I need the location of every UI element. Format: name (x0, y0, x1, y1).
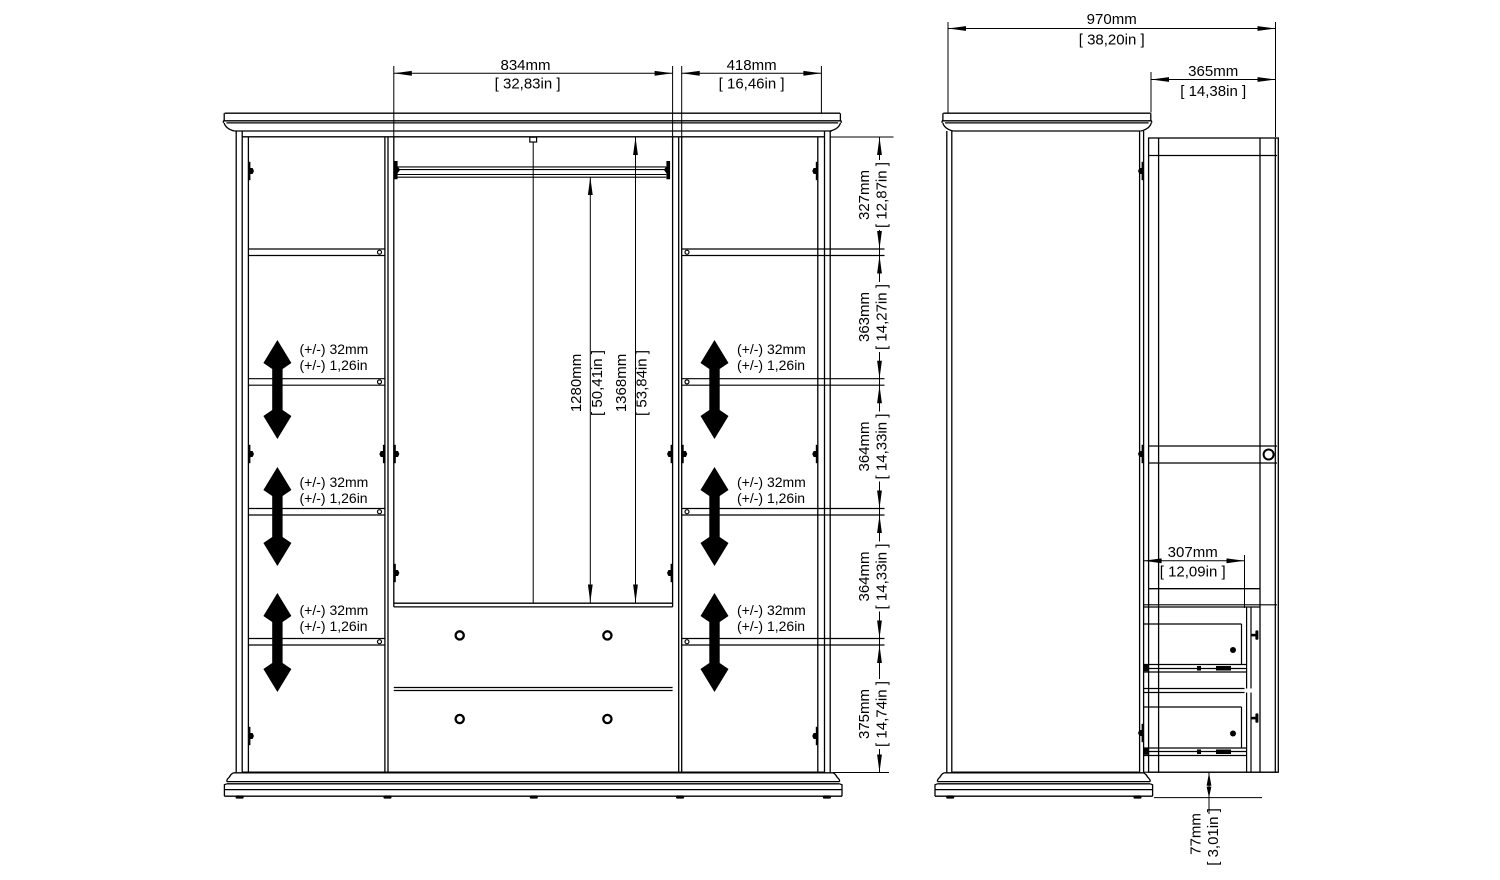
svg-text:[ 38,20in ]: [ 38,20in ] (1079, 32, 1145, 49)
svg-text:365mm: 365mm (1188, 63, 1238, 80)
svg-text:[ 12,87in ]: [ 12,87in ] (874, 162, 891, 228)
svg-text:1368mm: 1368mm (613, 354, 630, 412)
svg-text:[ 32,83in ]: [ 32,83in ] (495, 76, 561, 93)
svg-text:[ 3,01in ]: [ 3,01in ] (1205, 808, 1222, 866)
svg-text:[ 14,27in ]: [ 14,27in ] (874, 284, 891, 350)
svg-text:418mm: 418mm (727, 57, 777, 74)
svg-text:(+/-) 1,26in: (+/-) 1,26in (737, 490, 805, 506)
svg-text:375mm: 375mm (856, 689, 873, 739)
svg-text:363mm: 363mm (856, 292, 873, 342)
svg-text:(+/-) 1,26in: (+/-) 1,26in (300, 490, 368, 506)
svg-text:1280mm: 1280mm (568, 354, 585, 412)
svg-text:[ 14,33in ]: [ 14,33in ] (874, 544, 891, 610)
svg-text:327mm: 327mm (856, 170, 873, 220)
svg-text:970mm: 970mm (1087, 11, 1137, 28)
svg-text:307mm: 307mm (1168, 544, 1218, 561)
svg-text:(+/-) 32mm: (+/-) 32mm (300, 341, 369, 357)
svg-text:(+/-) 1,26in: (+/-) 1,26in (300, 357, 368, 373)
svg-text:(+/-) 32mm: (+/-) 32mm (300, 602, 369, 618)
svg-text:(+/-) 32mm: (+/-) 32mm (737, 341, 806, 357)
svg-text:[ 14,33in ]: [ 14,33in ] (874, 414, 891, 480)
svg-text:[ 14,74in ]: [ 14,74in ] (874, 681, 891, 747)
svg-text:(+/-) 1,26in: (+/-) 1,26in (737, 618, 805, 634)
svg-text:[ 50,41in ]: [ 50,41in ] (589, 350, 606, 416)
svg-text:(+/-) 1,26in: (+/-) 1,26in (737, 357, 805, 373)
svg-text:[ 12,09in ]: [ 12,09in ] (1160, 564, 1226, 581)
svg-text:[ 16,46in ]: [ 16,46in ] (719, 76, 785, 93)
svg-text:834mm: 834mm (500, 57, 550, 74)
svg-text:(+/-) 32mm: (+/-) 32mm (300, 474, 369, 490)
svg-text:(+/-) 32mm: (+/-) 32mm (737, 474, 806, 490)
svg-text:[ 53,84in ]: [ 53,84in ] (634, 350, 651, 416)
svg-text:(+/-) 32mm: (+/-) 32mm (737, 602, 806, 618)
svg-text:364mm: 364mm (856, 551, 873, 601)
svg-text:77mm: 77mm (1188, 813, 1205, 855)
svg-text:[ 14,38in ]: [ 14,38in ] (1180, 83, 1246, 100)
svg-text:(+/-) 1,26in: (+/-) 1,26in (300, 618, 368, 634)
svg-text:364mm: 364mm (856, 421, 873, 471)
